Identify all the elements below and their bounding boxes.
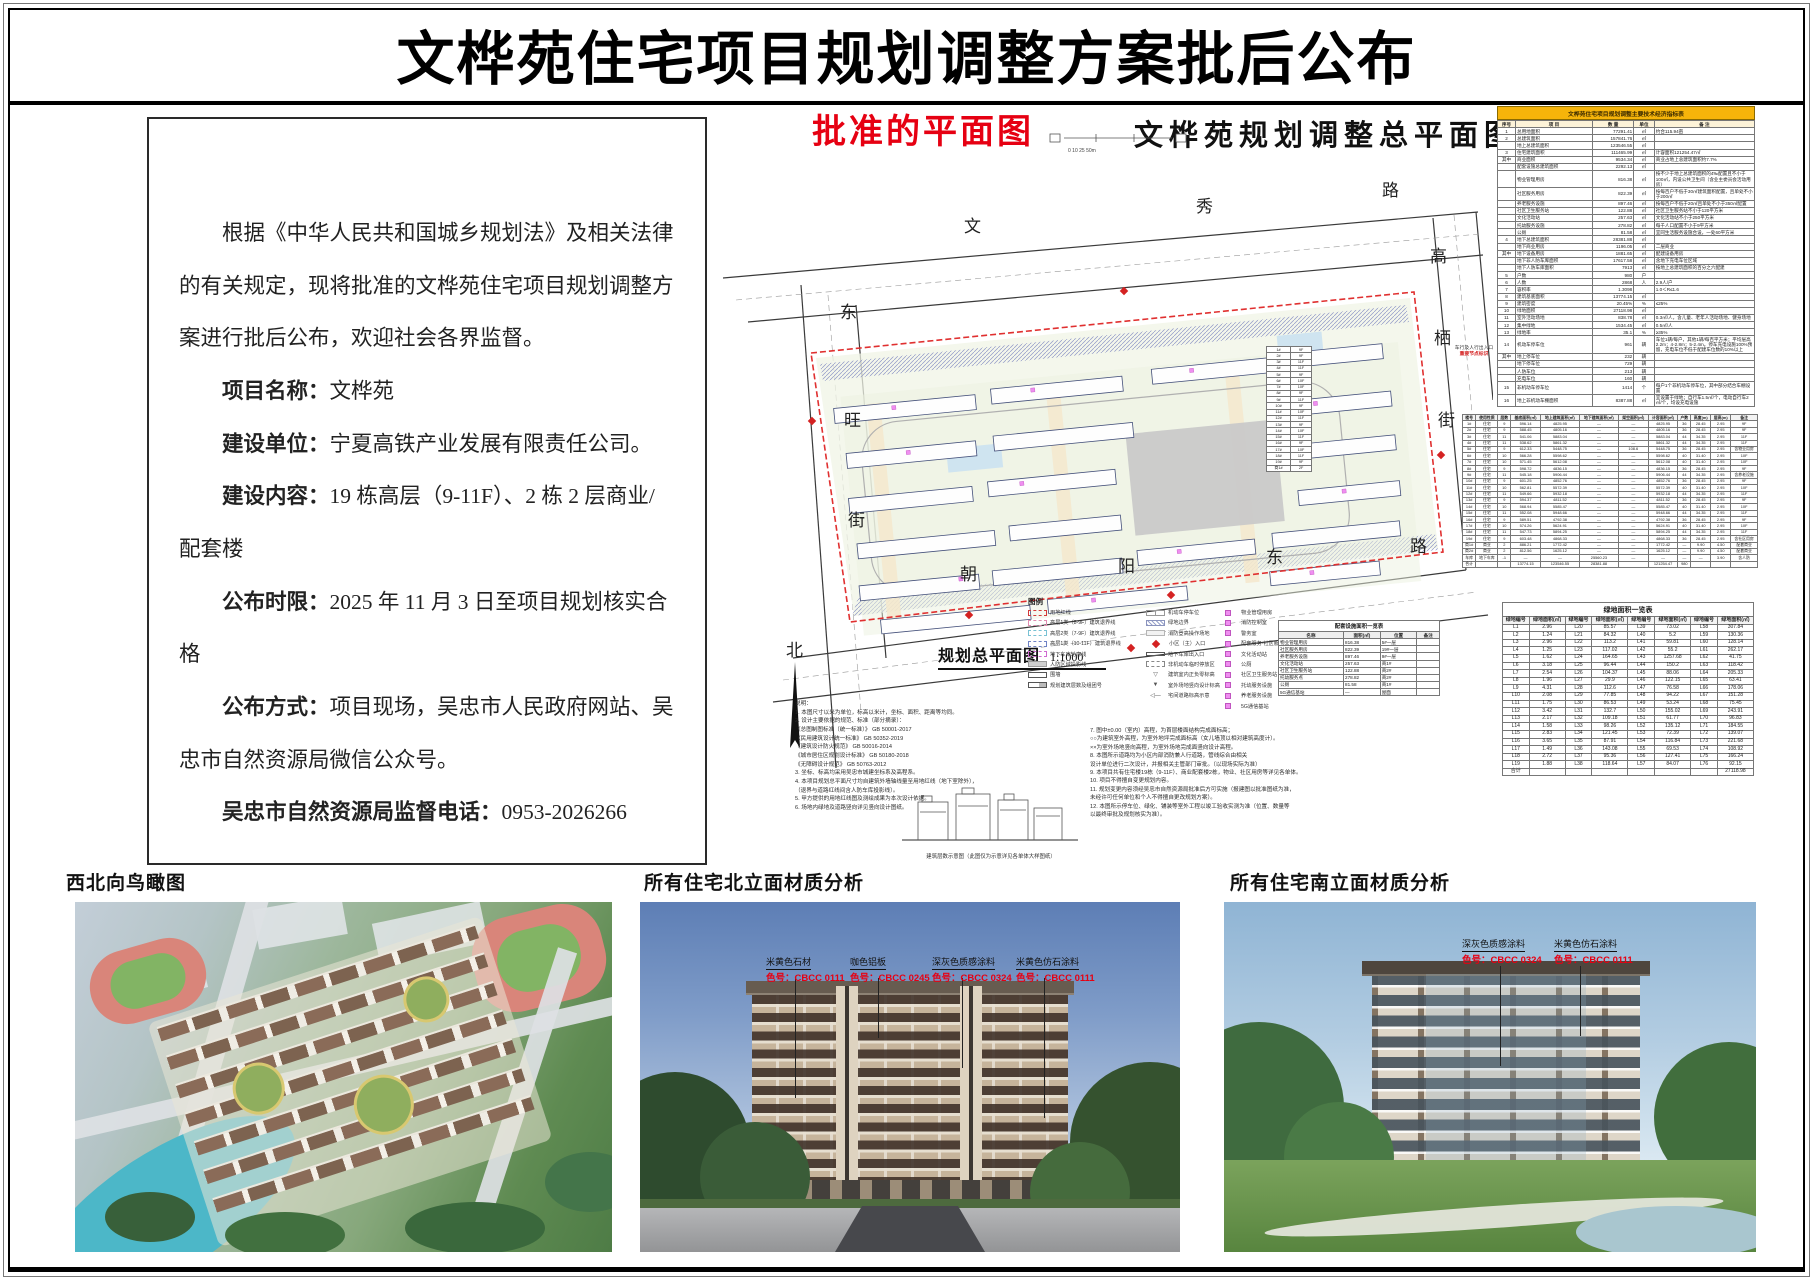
- legend-title: 图例: [1028, 596, 1276, 607]
- building-floors-mini-table: 1#9F2#9F3#11F4#11F5#9F6#10F7#10F8#9F9#11…: [1266, 346, 1312, 472]
- table-row: 16地上非机动车棚面积8387.88㎡宜设置于绿地；自行车1.5㎡/个，电动自行…: [1498, 394, 1755, 406]
- mg-symbol: [1225, 693, 1231, 699]
- elevation-sketch: [900, 782, 1080, 851]
- mark2-symbol: [1146, 682, 1165, 688]
- table-row: L12.96L2085.57L3973.02L58307.84: [1503, 624, 1754, 632]
- mg-symbol: [1225, 703, 1231, 709]
- note-line: 以最终审批及规划核实为准）。: [1090, 811, 1340, 819]
- note-line: 12. 本图所示停车位、绿化、铺装等室外工程以竣工验收实测为准（位置、数量等: [1090, 803, 1340, 811]
- table-row: 11室外活动场地838.78㎡0.3㎡/人，含儿童、老年人活动场地、健身场地: [1498, 314, 1755, 321]
- legend-label: 高层1类（8-9F）建筑退界线: [1050, 619, 1115, 626]
- legend-label: 高层1类（10-11F）建筑退界线: [1050, 640, 1121, 647]
- label-leader: [1044, 978, 1045, 1118]
- economic-indicators-table: 文桦苑住宅项目规划调整主要技术经济指标表 序号项 目数 量单位备 注1总用地面积…: [1497, 106, 1755, 407]
- legend-label: 人防区域投影线: [1050, 661, 1086, 668]
- mg-symbol: [1225, 682, 1231, 688]
- legend-item: 小区（主）入口: [1146, 640, 1218, 647]
- note-line: 2. 设计主要依据的规范、标准（部分摘录）：: [795, 717, 1083, 726]
- amenity-table: 配套设施面积一览表 名称面积(㎡)位置备注物业管理用房816.385#一层社区服…: [1278, 620, 1440, 696]
- table-row: 12集中绿地1534.45㎡0.5㎡/人: [1498, 322, 1755, 329]
- legend-label: 机动车停车位: [1168, 609, 1199, 616]
- legend-label: 室外场地竖向设计标高: [1168, 682, 1220, 689]
- red-diamond-symbol: [1152, 639, 1160, 647]
- legend-item: 配套服务·社区服务用房: [1218, 640, 1276, 647]
- note-line: ××为室外场地竖向高程，为室外场地完成面竖向设计高程。: [1090, 744, 1340, 752]
- table-row: L102.08L2977.85L4894.22L67151.28: [1503, 692, 1754, 700]
- table-row: 地下人防车库面积7913㎡按地上总建筑面积的百分之六配建: [1498, 264, 1755, 271]
- builder-label: 建设单位：: [222, 432, 330, 456]
- table-row: L94.31L28112.6L4776.58L66178.06: [1503, 685, 1754, 693]
- red-dash-symbol: [1028, 610, 1047, 616]
- legend-item: 地下车库轮廓线: [1028, 651, 1146, 658]
- material-name: 咖色铝板: [850, 955, 886, 970]
- legend-label: 社区卫生服务站: [1241, 671, 1277, 678]
- scale-bar: [1050, 134, 1186, 142]
- table-row: 其中地下设备用房1881.65㎡配建设备用房: [1498, 250, 1755, 257]
- legend-item: 宅间道路标高示意: [1146, 692, 1218, 699]
- table-row: L191.88L38118.64L5784.07L7692.15: [1503, 761, 1754, 769]
- legend-item: 高层1类（10-11F）建筑退界线: [1028, 640, 1146, 647]
- table-row: L41.25L23117.02L4255.2L61262.17: [1503, 647, 1754, 655]
- table-row: L81.96L2729.9L46122.15L6563.41: [1503, 677, 1754, 685]
- note-line: 9. 本项目共有住宅楼19栋（9-11F）、商业配套楼2栋，物业、社区用房等详见…: [1090, 769, 1340, 777]
- builder-line: 建设单位：宁夏高铁产业发展有限责任公司。: [179, 418, 675, 471]
- blue-dashdot-symbol: [1028, 641, 1047, 647]
- glass-balconies: [1426, 974, 1587, 1182]
- content-line: 建设内容：19 栋高层（9-11F）、2 栋 2 层商业/配套楼: [179, 470, 675, 575]
- table-row: 3住宅建筑面积111465.99㎡计容面积121254.47㎡: [1498, 149, 1755, 156]
- page-title: 文桦苑住宅项目规划调整方案批后公布: [0, 12, 1813, 96]
- legend-item: 社区卫生服务站: [1218, 671, 1276, 678]
- table-row: 文化活动站257.63㎡文化活动站不小于250平方米: [1498, 214, 1755, 221]
- table-row: 社区卫生服务站122.88商2#: [1279, 667, 1440, 674]
- legend-item: 建筑室内正负零标高: [1146, 671, 1218, 678]
- table-row: L123.42L31132.7L50155.02L69243.91: [1503, 708, 1754, 716]
- table-row: 5G通信基站—屋面: [1279, 689, 1440, 696]
- table-row: 物业管理用房816.38㎡按不少于地上总建筑面积的4‰配置且不小于100㎡，内设…: [1498, 170, 1755, 187]
- note-line: 未经许可任何单位和个人不得擅自更改规划方案）。: [1090, 794, 1340, 802]
- material-code: 色号：CBCC 0324: [1462, 952, 1542, 966]
- scale-text: 规划总平面图: [938, 648, 1040, 665]
- table-row: L51.62L24164.65L431257.68L6241.75: [1503, 654, 1754, 662]
- table-row: L21.24L2184.32L405.2L59130.36: [1503, 632, 1754, 640]
- material-name: 深灰色质感涂料: [932, 955, 995, 970]
- city-block: [252, 902, 348, 950]
- table-row: 合计13774.15123546.5528381.88121254.47980: [1463, 561, 1758, 567]
- material-code: 色号：CBCC 0324: [932, 970, 1012, 984]
- south-facade-building: [1372, 974, 1640, 1182]
- material-label: 米黄色仿石涂料 色号：CBCC 0111: [1554, 934, 1633, 966]
- note-line: 设计单位进行二次设计，并报相关主管部门审批。（以现场实际为准）: [1090, 761, 1340, 769]
- legend-label: 绿地边界: [1168, 619, 1189, 626]
- note-line: 8. 本图所示道路均为小区内部消防兼人行道路，管线综合由相关: [1090, 752, 1340, 760]
- stair-core: [836, 986, 858, 1206]
- legend-item: 公厕: [1218, 661, 1276, 668]
- material-label: 深灰色质感涂料 色号：CBCC 0324: [932, 952, 1012, 984]
- wide-box-symbol: [1146, 652, 1165, 656]
- legend-item: 室外场地竖向设计标高: [1146, 682, 1218, 689]
- mg-symbol: [1225, 610, 1231, 616]
- road-name-char: 路: [1410, 537, 1427, 556]
- legend-item: 消防登高操作场地: [1146, 630, 1218, 637]
- legend-label: 养老服务设施: [1241, 692, 1272, 699]
- legend-column-symbols: 机动车停车位绿地边界消防登高操作场地小区（主）入口地下车库出入口非机动车临时停放…: [1146, 609, 1218, 713]
- legend-column-facilities: 物业管理用房消防控制室警务室配套服务·社区服务用房文化活动站公厕社区卫生服务站托…: [1218, 609, 1276, 713]
- method-line: 公布方式：项目现场，吴忠市人民政府网站、吴忠市自然资源局微信公众号。: [179, 681, 675, 786]
- road-name-char: 街: [848, 511, 865, 530]
- table-row: 13绿地率35.1%≥35%: [1498, 329, 1755, 336]
- magenta-dash-symbol: [1028, 651, 1047, 657]
- legend-item: 规划建筑层数及组团号: [1028, 682, 1146, 689]
- period-line: 公布时限：2025 年 11 月 3 日至项目规划核实合格: [179, 576, 675, 681]
- legend-label: 建筑室内正负零标高: [1168, 671, 1215, 678]
- mark1-symbol: [1146, 671, 1165, 678]
- table-row: 地下停车位729辆: [1498, 360, 1755, 367]
- table-row: 7容积率1.30981.0＜R≤1.6: [1498, 286, 1755, 293]
- legend-item: 机动车停车位: [1146, 609, 1218, 616]
- legend-item: 地下车库出入口: [1146, 651, 1218, 658]
- trees: [405, 1202, 545, 1252]
- mg-symbol: [1225, 651, 1231, 657]
- gray-fill-symbol: [1028, 661, 1047, 667]
- road-name-char: 东: [1266, 548, 1283, 567]
- plan-legend: 图例 用地红线高层1类（8-9F）建筑退界线高层2类（7-9F）建筑退界线高层1…: [1028, 596, 1276, 713]
- legend-item: 非机动车临时停放区: [1146, 661, 1218, 668]
- announcement-paragraph: 根据《中华人民共和国城乡规划法》及相关法律的有关规定，现将批准的文桦苑住宅项目规…: [179, 207, 675, 365]
- table-row: L111.75L3086.53L4953.24L6875.45: [1503, 700, 1754, 708]
- pink-dashdot-symbol: [1028, 620, 1047, 626]
- table-row: 社区服务用房822.39㎡按每百户不低于30㎡建筑面积配置，且单处不小于200㎡: [1498, 188, 1755, 200]
- table-row: L132.17L32109.18L5161.77L7096.83: [1503, 715, 1754, 723]
- builder-value: 宁夏高铁产业发展有限责任公司。: [330, 432, 653, 456]
- material-code: 色号：CBCC 0245: [850, 970, 930, 984]
- sketch-caption: 建筑层数示意图（此图仅为示意详见各单体大样图纸）: [856, 852, 1126, 860]
- caption-north-facade: 所有住宅北立面材质分析: [644, 868, 864, 895]
- legend-label: 规划建筑层数及组团号: [1050, 682, 1102, 689]
- legend-label: 用地红线: [1050, 609, 1071, 616]
- legend-item: 5G通信基站: [1218, 703, 1276, 710]
- table-row: L152.83L34121.45L5372.39L72139.07: [1503, 730, 1754, 738]
- table-row: 地下非人防车库面积17617.58㎡含地下充电车位区域: [1498, 257, 1755, 264]
- mg-symbol: [1225, 641, 1231, 647]
- road-name-char: 文: [964, 217, 981, 236]
- table-row: 公厕81.58商1#: [1279, 681, 1440, 688]
- note-line: 1. 本图尺寸以米为单位，标高以米计，坐标、面积、距离等均同。: [795, 709, 1083, 718]
- hotline-line: 吴忠市自然资源局监督电话：0953-2026266: [179, 786, 675, 839]
- legend-label: 文化活动站: [1241, 651, 1267, 658]
- material-code: 色号：CBCC 0111: [1554, 952, 1633, 966]
- table-row: 人防车位213辆: [1498, 368, 1755, 375]
- material-name: 米黄色仿石涂料: [1016, 955, 1079, 970]
- entry-annotation: 车行及人行出入口 重要节点标识: [1452, 346, 1496, 358]
- road-name-char: 街: [1438, 411, 1455, 430]
- table-row: 8建筑基底面积13774.15㎡: [1498, 293, 1755, 300]
- table-row: 地下商业用房1196.05㎡二层商业: [1498, 243, 1755, 250]
- material-label: 咖色铝板 色号：CBCC 0245: [850, 952, 930, 984]
- hatch-symbol: [1146, 620, 1165, 626]
- table-row: 5户数980户: [1498, 272, 1755, 279]
- legend-item: 高层2类（7-9F）建筑退界线: [1028, 630, 1146, 637]
- legend-item: 物业管理用房: [1218, 609, 1276, 616]
- legend-label: 地下车库轮廓线: [1050, 651, 1086, 658]
- table-row: 养老服务设施897.46㎡按每百户不低于20㎡且单处不小于350㎡配置: [1498, 200, 1755, 207]
- mg-symbol: [1225, 620, 1231, 626]
- table-row: 配套设施总建筑面积2292.13㎡: [1498, 163, 1755, 170]
- mg-symbol: [1225, 672, 1231, 678]
- material-name: 深灰色质感涂料: [1462, 937, 1525, 952]
- road-name-char: 高: [1430, 247, 1447, 266]
- caption-south-facade: 所有住宅南立面材质分析: [1230, 868, 1450, 895]
- note-line: 《无障碍设计规范》 GB 50763-2012: [795, 761, 1083, 770]
- north-label: 北: [786, 641, 803, 660]
- dash-box-symbol: [1146, 661, 1165, 667]
- table-row: 商1#2F: [1267, 465, 1312, 471]
- material-label: 米黄色仿石涂料 色号：CBCC 0111: [1016, 952, 1095, 984]
- road-name-char: 旺: [844, 411, 861, 430]
- table-row: 4地下总建筑面积28381.88㎡: [1498, 236, 1755, 243]
- trees: [545, 1152, 612, 1212]
- legend-label: 物业管理用房: [1241, 609, 1272, 616]
- table-row: 绿地编号绿地面积(㎡)绿地编号绿地面积(㎡)绿地编号绿地面积(㎡)绿地编号绿地面…: [1503, 617, 1754, 625]
- table-row: 物业管理用房816.385#一层: [1279, 639, 1440, 646]
- note-line: 3. 坐标、标高均采用吴忠市城建坐标系及高程系。: [795, 769, 1083, 778]
- table-row: L141.58L3398.26L52135.12L71184.55: [1503, 723, 1754, 731]
- table-row: L182.72L3795.36L56127.41L75166.24: [1503, 753, 1754, 761]
- legend-label: 公厕: [1241, 661, 1251, 668]
- table-row: 地上总建筑面积123546.55㎡: [1498, 142, 1755, 149]
- table-row: 社区服务用房822.3919#一层: [1279, 646, 1440, 653]
- legend-item: 高层1类（8-9F）建筑退界线: [1028, 619, 1146, 626]
- table-row: 15非机动车停车位1414个每户1个非机动车停车位，其中部分结合车棚设置: [1498, 382, 1755, 394]
- table-row: L63.18L2596.44L44150.2L63118.42: [1503, 662, 1754, 670]
- scale-bar-ticks: 0 10 25 50m: [1068, 148, 1096, 154]
- table-row: 公厕81.58㎡宜同生活服务设施合设，一处60平方米: [1498, 229, 1755, 236]
- table-row: L171.49L36143.08L5569.53L74108.92: [1503, 746, 1754, 754]
- poster-page: 文桦苑住宅项目规划调整方案批后公布 根据《中华人民共和国城乡规划法》及相关法律的…: [0, 0, 1813, 1280]
- table-row: 14机动车停车位961辆车位1辆/每户，其他1辆/每百平方米；平均层高2.2m；…: [1498, 336, 1755, 353]
- road-name-char: 路: [1382, 181, 1399, 200]
- project-name-line: 项目名称：文桦苑: [179, 365, 675, 418]
- legend-label: 警务室: [1241, 630, 1257, 637]
- table-row: 1总用地面积77291.41㎡约合115.94亩: [1498, 128, 1755, 135]
- legend-label: 5G通信基站: [1241, 703, 1269, 710]
- aerial-view-photo: [75, 902, 612, 1252]
- table-row: L72.54L26104.37L4588.06L64205.33: [1503, 670, 1754, 678]
- table-row: 托幼服务点278.82商2#: [1279, 674, 1440, 681]
- table-row: 养老服务设施897.469#一层: [1279, 653, 1440, 660]
- trees: [105, 1192, 195, 1242]
- legend-item: 围墙: [1028, 671, 1146, 678]
- legend-label: 地下车库出入口: [1168, 651, 1204, 658]
- legend-item: 养老服务设施: [1218, 692, 1276, 699]
- legend-label: 消防登高操作场地: [1168, 630, 1210, 637]
- legend-label: 宅间道路标高示意: [1168, 692, 1210, 699]
- amenity-table-title: 配套设施面积一览表: [1278, 620, 1440, 631]
- hotline-label: 吴忠市自然资源局监督电话：: [222, 800, 502, 824]
- table-row: 充电车位160辆: [1498, 375, 1755, 382]
- building-list-table: 楼号使用性质层数基底面积(㎡)地上建筑面积(㎡)地下建筑面积(㎡)架空面积(㎡)…: [1462, 414, 1758, 568]
- method-label: 公布方式：: [222, 695, 330, 719]
- label-leader: [795, 978, 796, 1098]
- south-facade-photo: 深灰色质感涂料 色号：CBCC 0324 米黄色仿石涂料 色号：CBCC 011…: [1224, 902, 1756, 1252]
- label-leader: [1500, 966, 1501, 1066]
- material-label: 米黄色石材 色号：CBCC 0111: [766, 952, 845, 984]
- road-name-char: 阳: [1118, 557, 1135, 576]
- material-name: 米黄色石材: [766, 955, 811, 970]
- note-line: ○○为建筑室外高程，为室外地坪完成面标高（女儿墙顶以相对建筑高度计）。: [1090, 735, 1340, 743]
- announcement-box: 根据《中华人民共和国城乡规划法》及相关法律的有关规定，现将批准的文桦苑住宅项目规…: [147, 117, 707, 865]
- legend-label: 非机动车临时停放区: [1168, 661, 1215, 668]
- legend-item: 用地红线: [1028, 609, 1146, 616]
- table-row: L163.65L3587.91L54116.84L73221.68: [1503, 738, 1754, 746]
- mark3-symbol: [1146, 692, 1165, 699]
- mg-symbol: [1225, 661, 1231, 667]
- legend-item: 文化活动站: [1218, 651, 1276, 658]
- table-row: 其中地上停车位232辆: [1498, 353, 1755, 360]
- stair-core: [960, 986, 982, 1206]
- project-name-value: 文桦苑: [330, 379, 395, 403]
- white-box-symbol: [1028, 672, 1047, 678]
- road-name-char: 栖: [1434, 329, 1451, 348]
- hotline-number: 0953-2026266: [502, 800, 627, 824]
- table-row: 序号项 目数 量单位备 注: [1498, 121, 1755, 128]
- note-line: 10. 项目不得擅自变更规划内容。: [1090, 777, 1340, 785]
- table-row: 9建筑密度20.45%%≤25%: [1498, 300, 1755, 307]
- num-box-symbol: [1028, 682, 1047, 688]
- table-row: L32.96L22113.2L4159.81L60128.14: [1503, 639, 1754, 647]
- road-name-char: 东: [840, 303, 857, 322]
- table-row: 文化活动站257.63商1#: [1279, 660, 1440, 667]
- label-leader: [878, 978, 879, 1038]
- table-row: 名称面积(㎡)位置备注: [1279, 632, 1440, 639]
- material-name: 米黄色仿石涂料: [1554, 937, 1617, 952]
- table-row: 2总建筑面积157841.76㎡: [1498, 135, 1755, 142]
- mg-symbol: [1225, 630, 1231, 636]
- legend-label: 消防控制室: [1241, 619, 1267, 626]
- material-code: 色号：CBCC 0111: [766, 970, 845, 984]
- table-row: 6人数2868人2.9人/户: [1498, 279, 1755, 286]
- green-area-table: 绿地面积一览表 绿地编号绿地面积(㎡)绿地编号绿地面积(㎡)绿地编号绿地面积(㎡…: [1502, 602, 1754, 776]
- note-line: 7. 图中±0.00（室内）高程，为首层楼面结构完成面标高；: [1090, 727, 1340, 735]
- road-name-char: 朝: [960, 565, 977, 584]
- green-area-table-title: 绿地面积一览表: [1502, 602, 1754, 616]
- legend-item: 托幼服务设施: [1218, 682, 1276, 689]
- legend-item: 消防控制室: [1218, 619, 1276, 626]
- note-line: 《建筑设计防火规范》 GB 50016-2014: [795, 743, 1083, 752]
- table-row: 托幼服务设施278.82㎡每千人口配置不小于9平方米: [1498, 222, 1755, 229]
- legend-column-lines: 用地红线高层1类（8-9F）建筑退界线高层2类（7-9F）建筑退界线高层1类（1…: [1028, 609, 1146, 713]
- note-line: 《总图制图标准（统一标准）》 GB 50001-2017: [795, 726, 1083, 735]
- content-label: 建设内容：: [222, 484, 330, 508]
- label-leader: [1580, 966, 1581, 1036]
- material-code: 色号：CBCC 0111: [1016, 970, 1095, 984]
- caption-aerial-view: 西北向鸟瞰图: [66, 868, 186, 895]
- legend-item: 警务室: [1218, 630, 1276, 637]
- cell-symbol: [1146, 610, 1165, 616]
- economic-indicators-title: 文桦苑住宅项目规划调整主要技术经济指标表: [1497, 106, 1755, 120]
- note-line: 《民用建筑设计统一标准》 GB 50352-2019: [795, 735, 1083, 744]
- note-line: 11. 规划变更内容须经吴忠市自然资源局批准后方可实施（报建图以批准图纸为准，: [1090, 786, 1340, 794]
- road-name-char: 秀: [1196, 197, 1213, 216]
- period-label: 公布时限：: [222, 590, 330, 614]
- project-name-label: 项目名称：: [222, 379, 330, 403]
- legend-label: 围墙: [1050, 671, 1060, 678]
- table-row: 社区卫生服务站122.88㎡社区卫生服务站不小于120平方米: [1498, 207, 1755, 214]
- material-label: 深灰色质感涂料 色号：CBCC 0324: [1462, 934, 1542, 966]
- legend-label: 高层2类（7-9F）建筑退界线: [1050, 630, 1115, 637]
- cyan-dash-symbol: [1028, 630, 1047, 636]
- north-facade-photo: 米黄色石材 色号：CBCC 0111 咖色铝板 色号：CBCC 0245 深灰色…: [640, 902, 1180, 1252]
- plan-notes-right: 7. 图中±0.00（室内）高程，为首层楼面结构完成面标高； ○○为建筑室外高程…: [1090, 727, 1340, 819]
- legend-label: 托幼服务设施: [1241, 682, 1272, 689]
- note-line: 说明：: [795, 700, 1083, 709]
- table-row: 其中商业面积9534.34㎡商业占地上总建筑面积约7.7%: [1498, 156, 1755, 163]
- entry-annotation-line2: 重要节点标识: [1452, 352, 1496, 358]
- table-row: 合计27118.98: [1503, 768, 1754, 776]
- table-row: 10绿地面积27118.98㎡: [1498, 307, 1755, 314]
- legend-item: 绿地边界: [1146, 619, 1218, 626]
- plain-symbol: [1146, 630, 1165, 636]
- central-gray-area: [1126, 420, 1285, 536]
- label-leader: [962, 978, 963, 1068]
- trees: [225, 1212, 345, 1252]
- note-line: 《城市居住区规划设计标准》 GB 50180-2018: [795, 752, 1083, 761]
- legend-label: 小区（主）入口: [1169, 640, 1205, 647]
- legend-item: 人防区域投影线: [1028, 661, 1146, 668]
